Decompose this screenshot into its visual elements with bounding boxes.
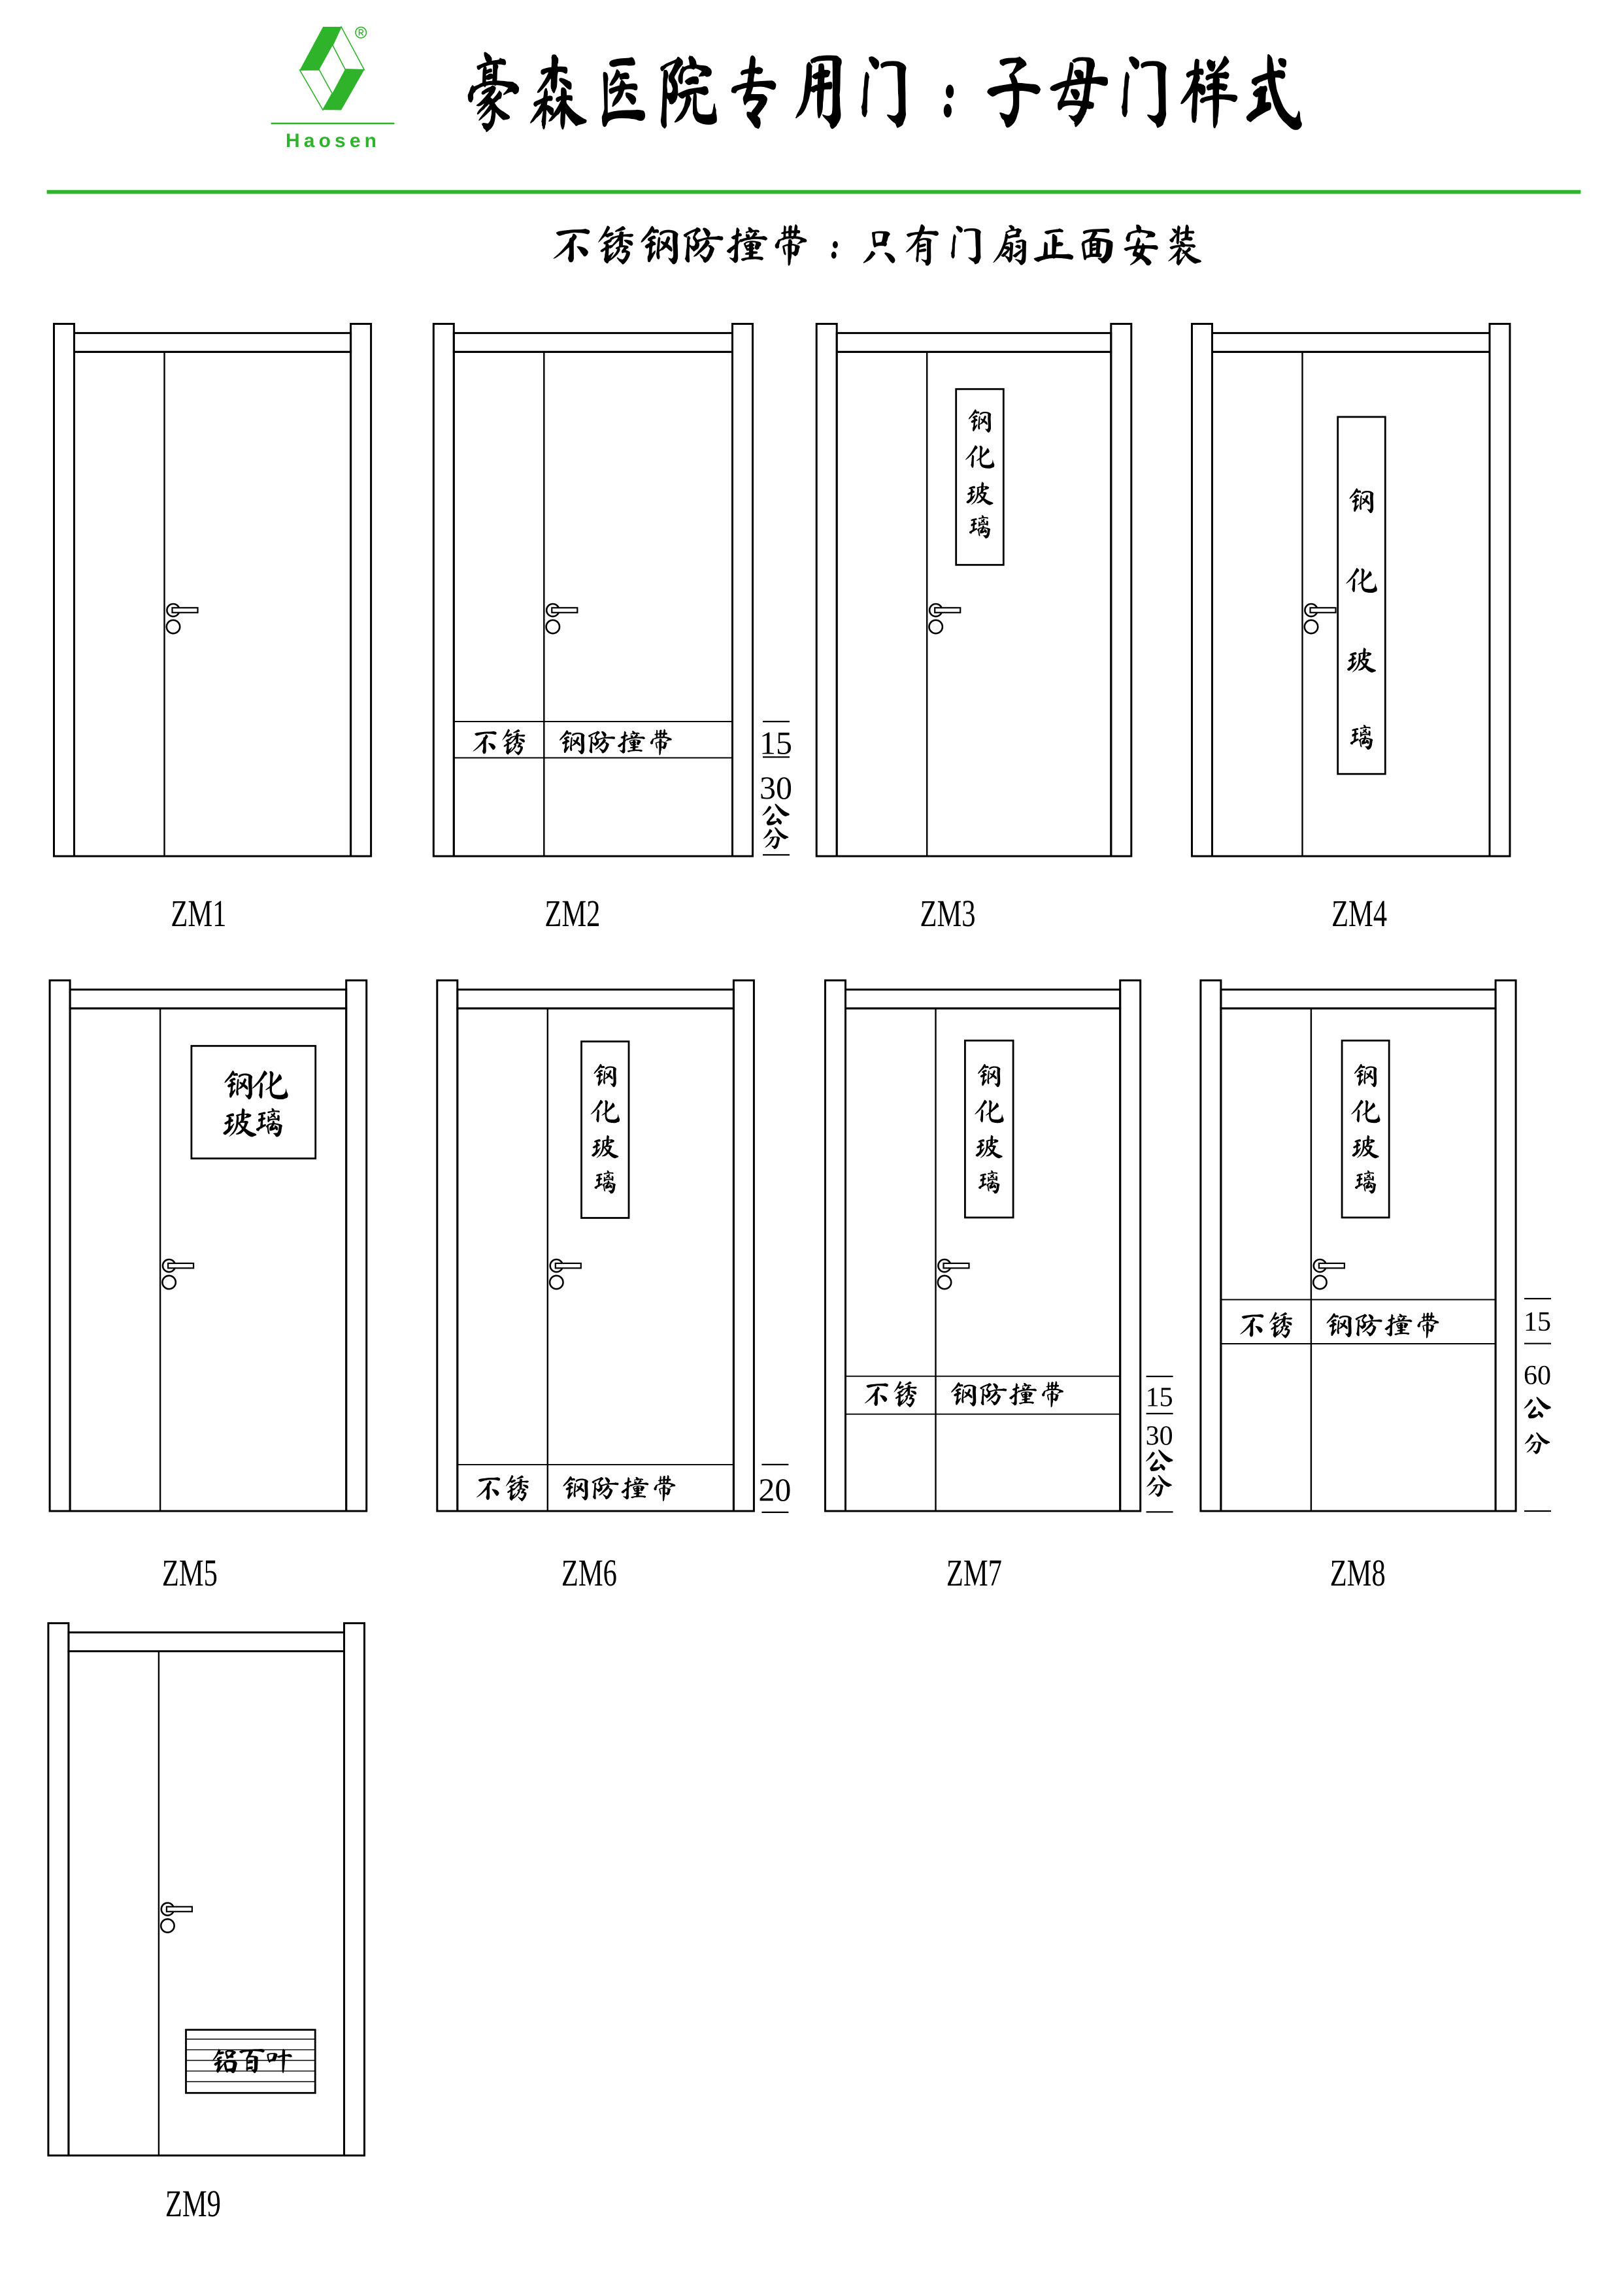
svg-text:20: 20: [758, 1471, 791, 1508]
svg-text:15: 15: [1146, 1383, 1173, 1413]
svg-text:ZM7: ZM7: [946, 1552, 1002, 1594]
svg-text:ZM3: ZM3: [920, 892, 976, 935]
svg-text:ZM2: ZM2: [544, 892, 600, 935]
svg-text:ZM8: ZM8: [1330, 1552, 1386, 1594]
svg-text:30: 30: [1146, 1422, 1173, 1452]
svg-text:ZM4: ZM4: [1331, 892, 1387, 935]
svg-text:ZM6: ZM6: [561, 1552, 617, 1594]
svg-text:15: 15: [1524, 1307, 1551, 1337]
svg-text:15: 15: [760, 725, 792, 761]
svg-text:ZM5: ZM5: [162, 1552, 218, 1594]
svg-text:30: 30: [760, 769, 792, 806]
svg-text:ZM1: ZM1: [171, 892, 226, 935]
svg-text:60: 60: [1524, 1361, 1551, 1391]
svg-text:ZM9: ZM9: [165, 2182, 221, 2225]
